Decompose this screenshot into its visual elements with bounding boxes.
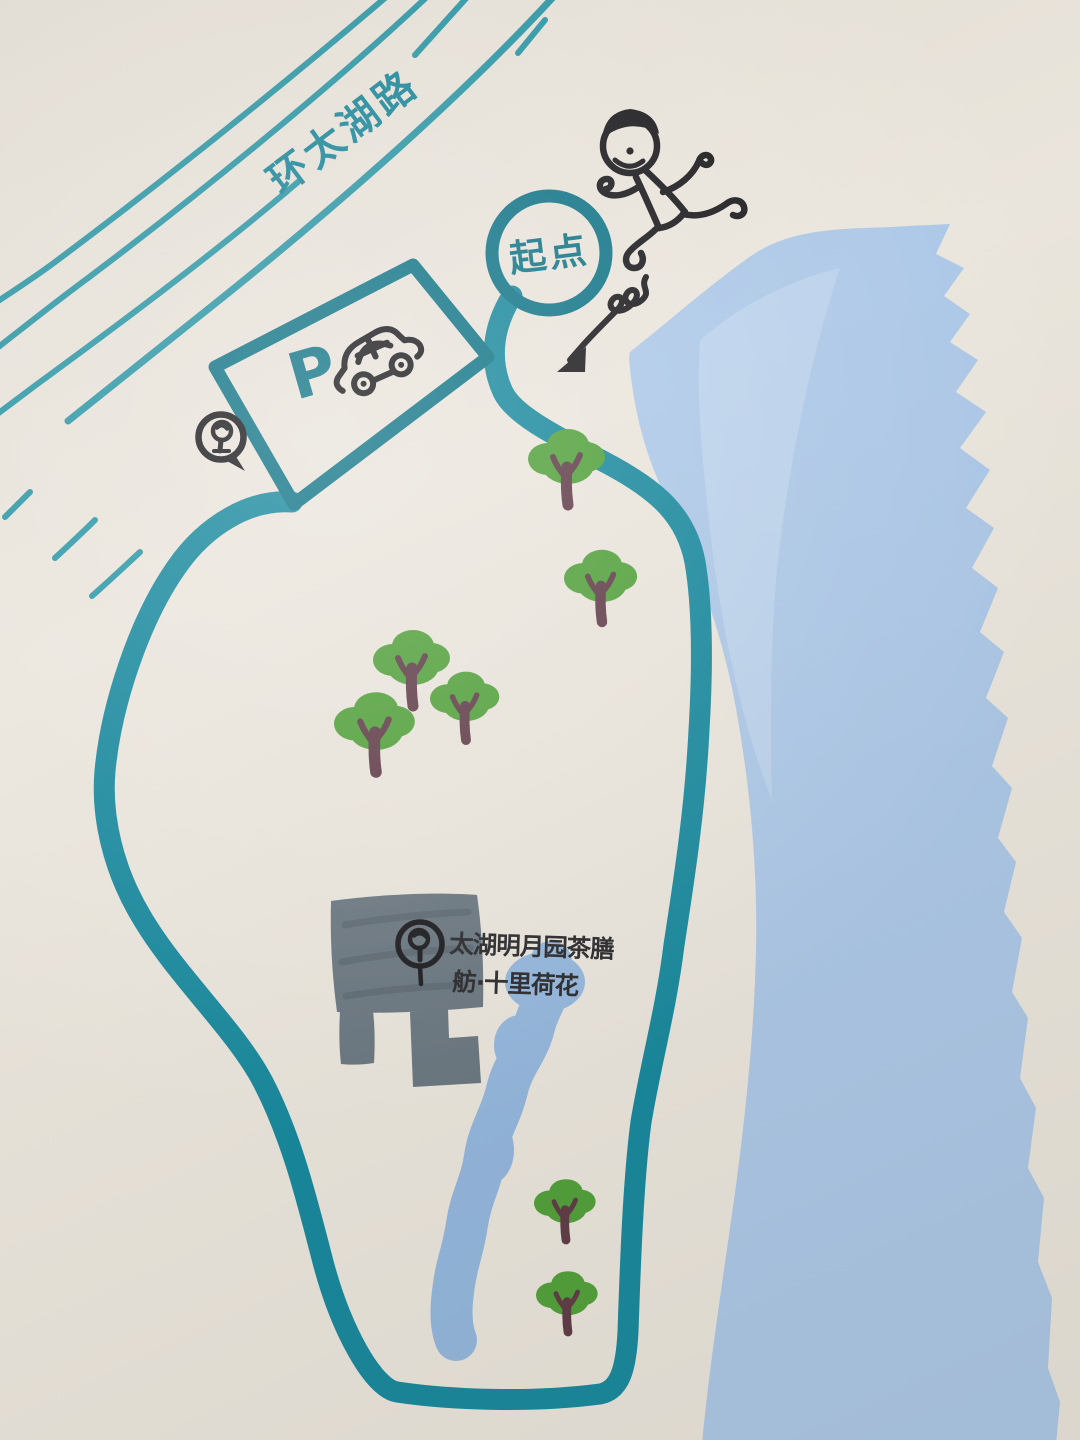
car-icon <box>324 318 429 403</box>
start-circle: 起点 <box>492 196 606 310</box>
building-group: 太湖明月园茶膳 舫·十里荷花 <box>331 894 615 1087</box>
tree-icon <box>534 1179 596 1240</box>
building-annex-block <box>339 1010 374 1064</box>
map-drawing: 环太湖路 P 起点 <box>0 0 1080 1440</box>
route-loop <box>104 296 701 1400</box>
tree-icon <box>536 1271 598 1332</box>
tree-icon <box>430 672 499 740</box>
ring-road-lines <box>0 0 556 421</box>
runner-icon <box>600 109 744 268</box>
start-label: 起点 <box>507 228 592 280</box>
building-label-line2: 舫·十里荷花 <box>452 967 579 1000</box>
pin-tree-icon <box>199 415 246 472</box>
parking-label: P <box>280 331 345 415</box>
paper-canvas: 环太湖路 P 起点 <box>0 0 1080 1440</box>
tree-icon <box>564 550 637 622</box>
building-label-line1: 太湖明月园茶膳 <box>449 929 615 964</box>
tree-icon <box>334 692 415 772</box>
tree-icon <box>528 429 605 505</box>
building-annex-block-2 <box>410 1009 481 1087</box>
parking-area: P <box>215 265 488 504</box>
